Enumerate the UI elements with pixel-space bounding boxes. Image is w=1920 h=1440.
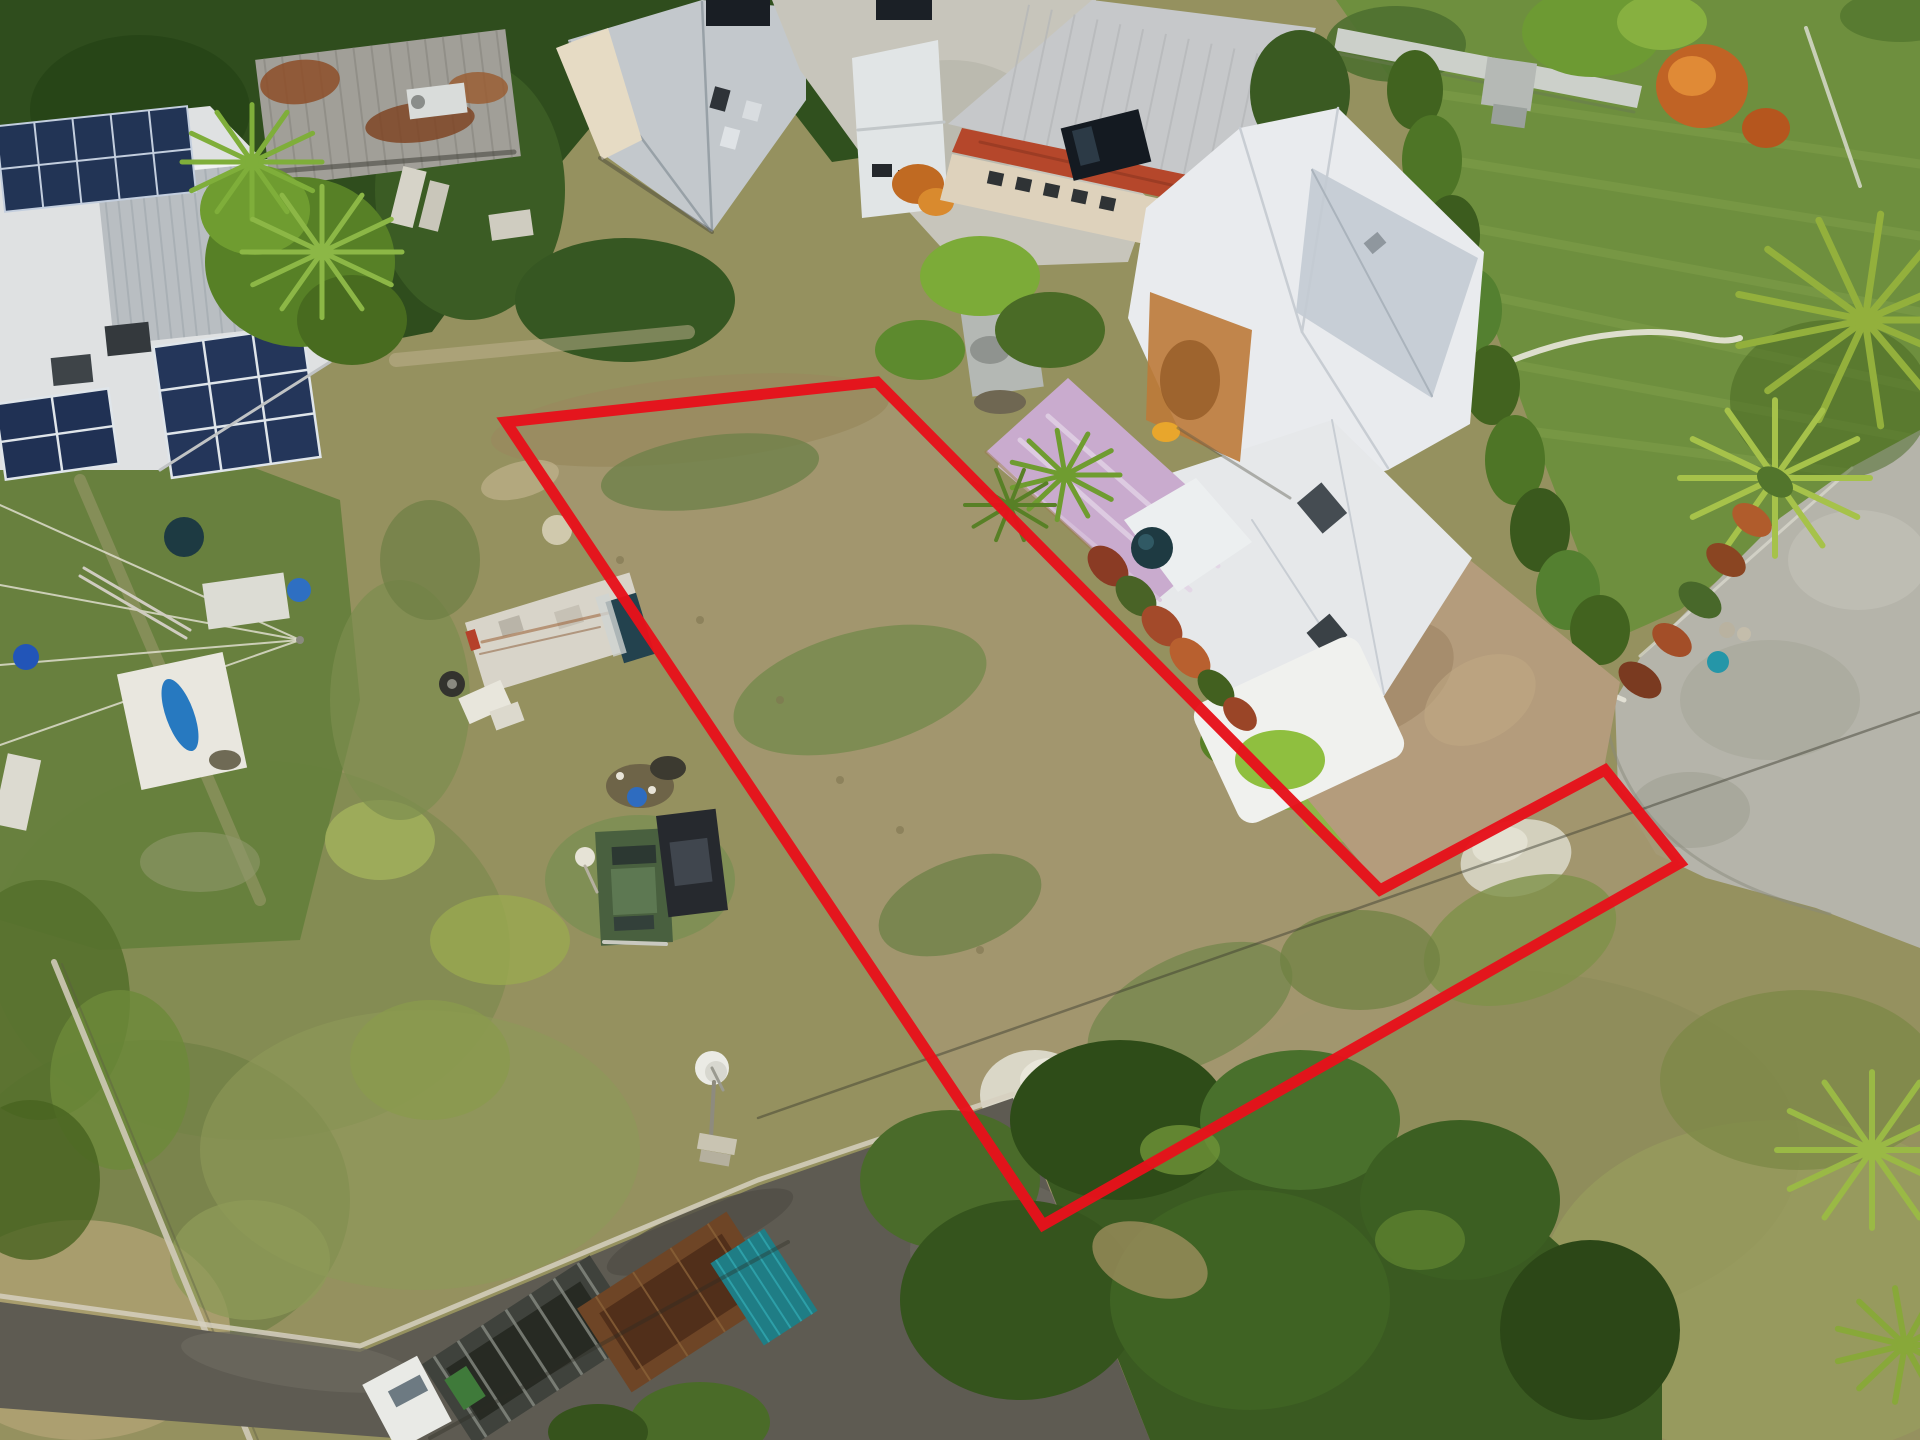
heater-tank — [411, 95, 425, 109]
banana-mid-c — [297, 275, 407, 365]
lot-speckle-2 — [696, 616, 704, 624]
parked-car-top — [706, 0, 770, 26]
notch-grass-b — [1280, 910, 1440, 1010]
solar-bank-main — [154, 326, 321, 478]
sw-grass-b — [430, 895, 570, 985]
stone-b — [1737, 627, 1751, 641]
sw-grass-c — [350, 1000, 510, 1120]
btm-tree-e — [1500, 1240, 1680, 1420]
roof-skylight-a — [51, 354, 94, 386]
car-green-bumper — [604, 942, 666, 944]
stone-a — [1719, 622, 1735, 638]
junk-white-a — [616, 772, 624, 780]
btm-tree-hl-b — [1375, 1210, 1465, 1270]
blue-barrel-left — [13, 644, 39, 670]
clothesline-pole — [296, 636, 304, 644]
sw-green-a — [330, 580, 470, 820]
backyard-dry — [140, 832, 260, 892]
junk-dark — [650, 756, 686, 780]
btm-tree-g — [1110, 1190, 1390, 1410]
teal-bucket — [1707, 651, 1729, 673]
house-garden-b — [995, 292, 1105, 368]
aerial-photo-canvas — [0, 0, 1920, 1440]
lot-speckle-1 — [616, 556, 624, 564]
car-dark-roof — [669, 838, 712, 886]
small-dish — [575, 847, 595, 867]
lot-speckle-5 — [896, 826, 904, 834]
lot-speckle-3 — [776, 696, 784, 704]
tire-hub — [447, 679, 457, 689]
orange-accent — [1152, 422, 1180, 442]
car-green-windshield — [612, 845, 657, 865]
junk-barrel-blue — [627, 787, 647, 807]
solar-bank-low — [0, 388, 119, 479]
house-garden-c — [875, 320, 965, 380]
shed-junk-b — [209, 750, 241, 770]
storage-boxes — [1481, 57, 1537, 111]
car-top-left — [876, 0, 932, 20]
blue-pool — [287, 578, 311, 602]
orange-wall-dark — [1160, 340, 1220, 420]
lot-speckle-4 — [836, 776, 844, 784]
dish-inner-shadow — [705, 1061, 727, 1083]
water-tank-highlight — [1138, 534, 1154, 550]
aerial-photo — [0, 0, 1920, 1440]
sw-green-b — [380, 500, 480, 620]
tank-left — [164, 517, 204, 557]
car-green-rear-window — [614, 915, 655, 931]
small-house-window-a — [872, 164, 892, 177]
water-tank — [1131, 527, 1173, 569]
junk-white-b — [648, 786, 656, 794]
orange-shrub-b — [1742, 108, 1790, 148]
car-green-roof — [611, 867, 657, 915]
shed-junk — [974, 390, 1026, 414]
lot-speckle-6 — [976, 946, 984, 954]
orange-shrub-core — [1668, 56, 1716, 96]
roof-skylight-b — [105, 322, 152, 356]
